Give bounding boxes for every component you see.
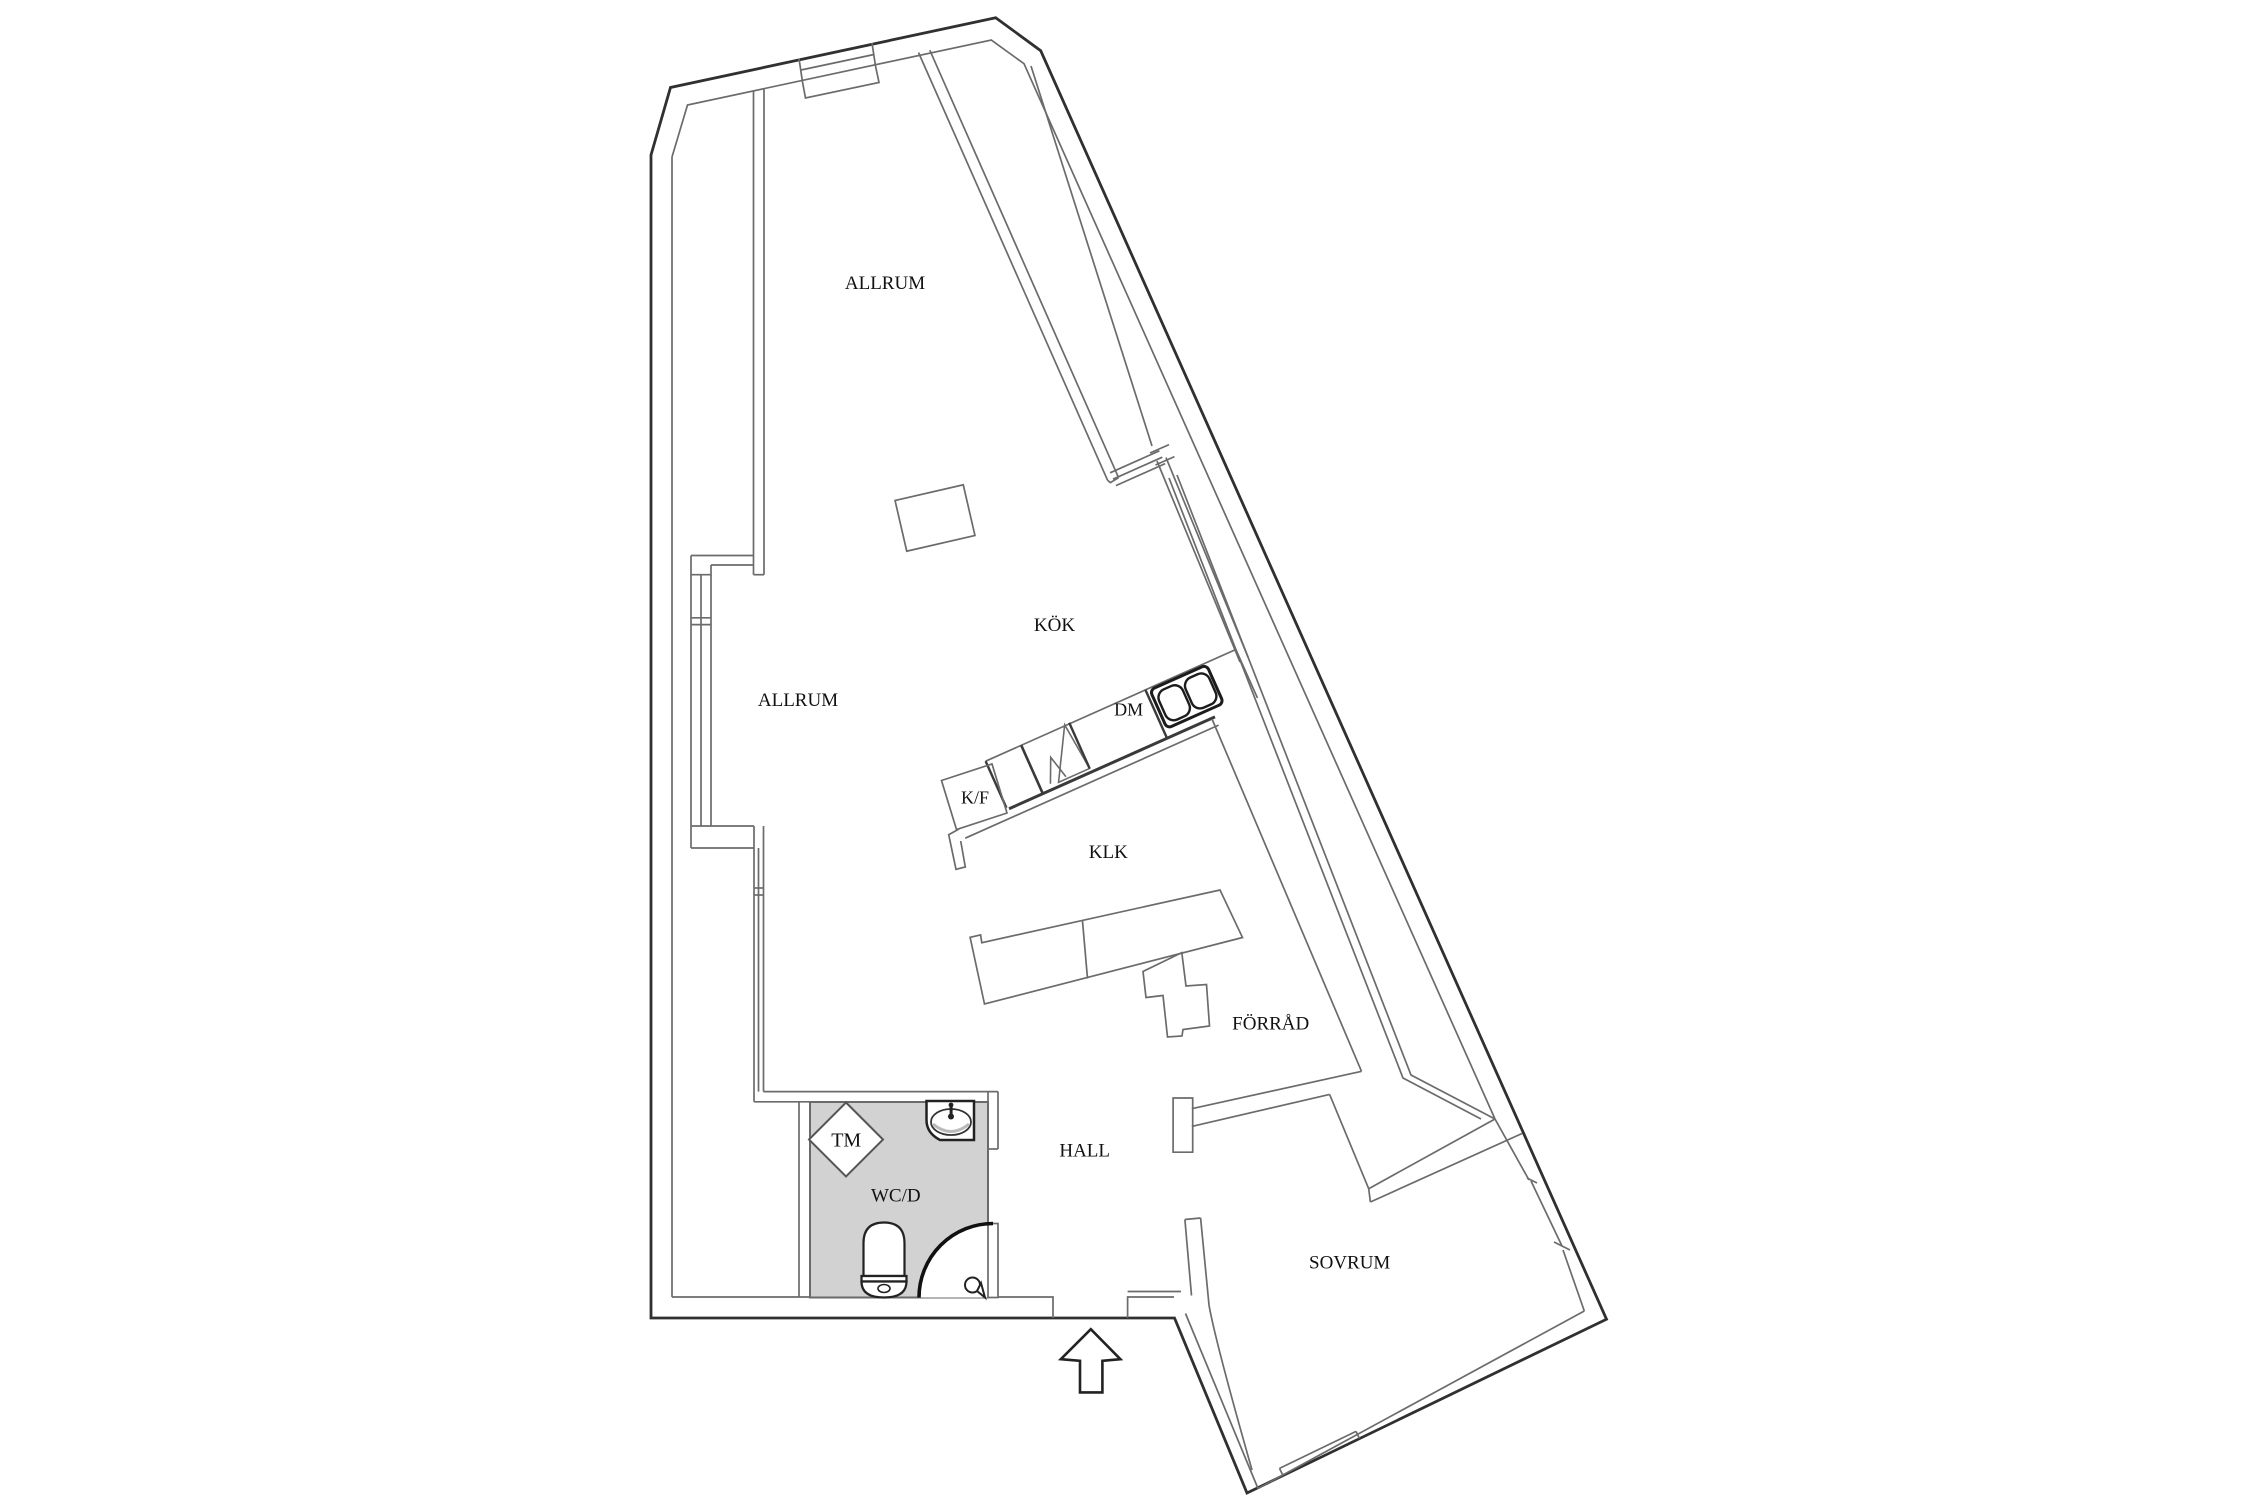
svg-text:KLK: KLK — [1089, 842, 1128, 863]
svg-text:ALLRUM: ALLRUM — [845, 273, 925, 294]
svg-text:FÖRRÅD: FÖRRÅD — [1232, 1014, 1309, 1035]
svg-text:K/F: K/F — [961, 788, 989, 808]
svg-text:HALL: HALL — [1059, 1140, 1110, 1161]
svg-text:KÖK: KÖK — [1034, 615, 1075, 636]
svg-text:WC/D: WC/D — [871, 1186, 921, 1207]
svg-text:DM: DM — [1114, 700, 1143, 720]
svg-text:SOVRUM: SOVRUM — [1309, 1253, 1390, 1274]
svg-text:ALLRUM: ALLRUM — [758, 690, 838, 711]
svg-text:TM: TM — [831, 1130, 861, 1152]
